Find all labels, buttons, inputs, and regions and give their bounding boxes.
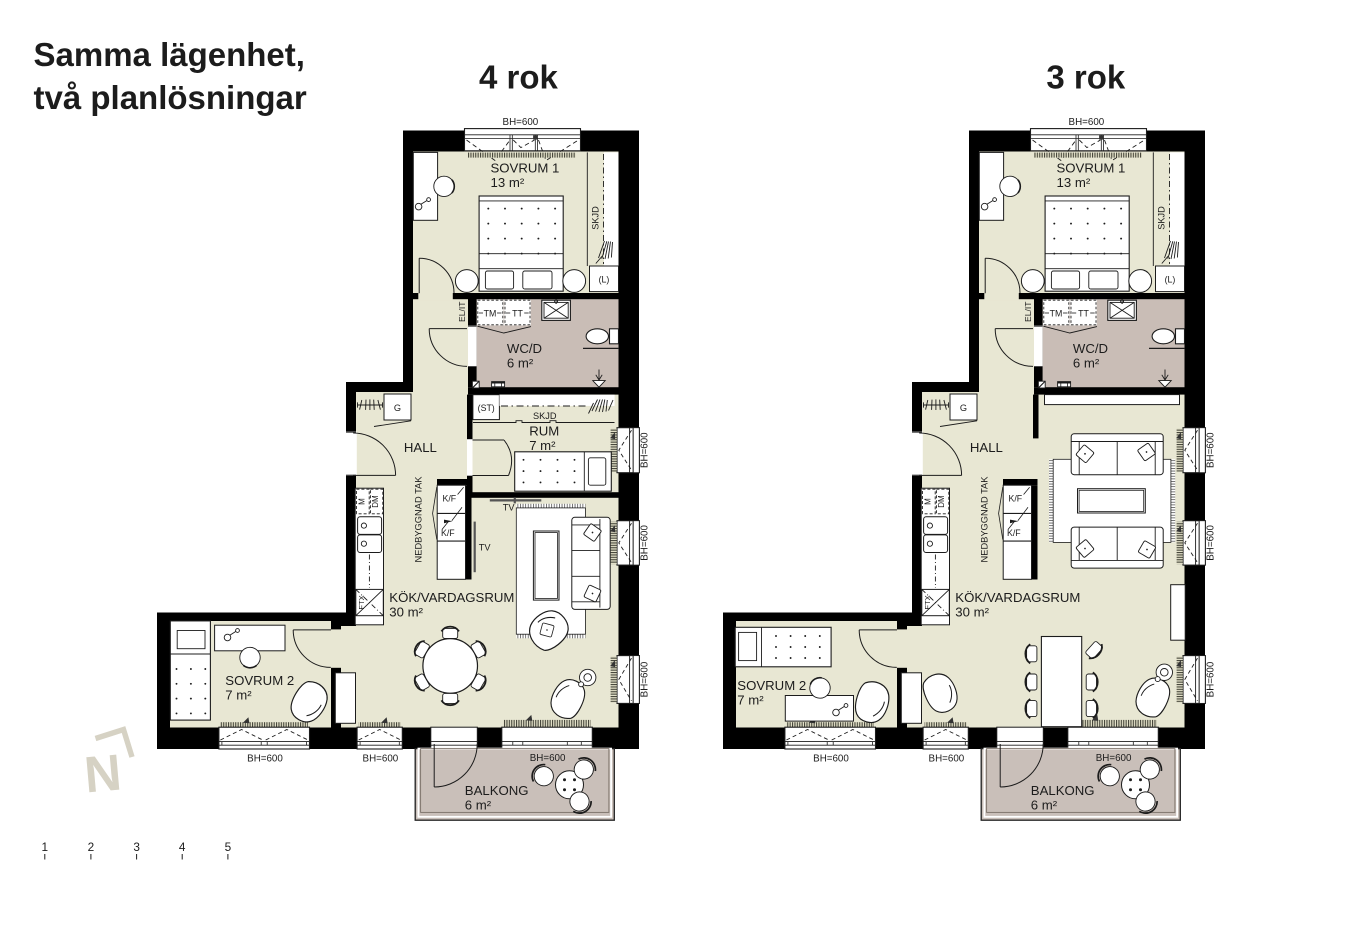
svg-text:två planlösningar: två planlösningar (34, 79, 307, 116)
svg-text:6 m²: 6 m² (465, 798, 492, 813)
svg-text:4: 4 (179, 840, 186, 854)
svg-text:M: M (924, 498, 933, 505)
svg-text:TT: TT (1078, 309, 1089, 319)
svg-text:BH=600: BH=600 (813, 754, 849, 765)
svg-text:BH=600: BH=600 (640, 432, 651, 468)
svg-text:30 m²: 30 m² (389, 604, 423, 619)
svg-text:5: 5 (225, 840, 232, 854)
svg-text:DM: DM (937, 495, 946, 508)
svg-text:BH=600: BH=600 (640, 661, 651, 697)
svg-text:7 m²: 7 m² (529, 438, 556, 453)
svg-text:3: 3 (133, 840, 140, 854)
svg-text:BH=600: BH=600 (503, 117, 539, 128)
svg-text:BALKONG: BALKONG (1031, 783, 1095, 798)
svg-text:EL/IT: EL/IT (1023, 301, 1033, 322)
svg-text:BH=600: BH=600 (1206, 432, 1217, 468)
svg-text:BH=600: BH=600 (530, 753, 566, 764)
svg-text:4 rok: 4 rok (479, 59, 559, 96)
svg-text:M: M (358, 498, 367, 505)
svg-text:WC/D: WC/D (507, 341, 542, 356)
svg-text:13 m²: 13 m² (491, 175, 525, 190)
svg-text:7 m²: 7 m² (225, 687, 252, 702)
svg-text:FTX: FTX (357, 595, 366, 609)
svg-text:6 m²: 6 m² (507, 355, 534, 370)
svg-text:BH=600: BH=600 (247, 754, 283, 765)
svg-text:7 m²: 7 m² (737, 693, 764, 708)
svg-text:NEDBYGGNAD TAK: NEDBYGGNAD TAK (980, 476, 990, 563)
svg-text:HALL: HALL (970, 440, 1003, 455)
svg-text:TV: TV (479, 543, 492, 553)
svg-text:SOVRUM 2: SOVRUM 2 (737, 678, 806, 693)
svg-text:SKJD: SKJD (1157, 206, 1167, 230)
svg-text:SKJD: SKJD (591, 206, 601, 230)
svg-text:NEDBYGGNAD TAK: NEDBYGGNAD TAK (414, 476, 424, 563)
svg-text:WC/D: WC/D (1073, 341, 1108, 356)
svg-text:TV: TV (503, 503, 516, 513)
svg-text:SOVRUM 1: SOVRUM 1 (491, 161, 560, 176)
svg-text:K/F: K/F (441, 528, 455, 538)
svg-text:30 m²: 30 m² (955, 604, 989, 619)
svg-text:K/F: K/F (1009, 494, 1023, 504)
svg-text:BH=600: BH=600 (1096, 753, 1132, 764)
svg-text:FTX: FTX (923, 595, 932, 609)
svg-text:SOVRUM 1: SOVRUM 1 (1057, 161, 1126, 176)
svg-text:BH=600: BH=600 (1206, 661, 1217, 697)
svg-text:SKJD: SKJD (533, 411, 557, 421)
svg-text:HALL: HALL (404, 440, 437, 455)
svg-text:SOVRUM 2: SOVRUM 2 (225, 673, 294, 688)
svg-text:G: G (960, 403, 967, 413)
svg-text:13 m²: 13 m² (1057, 175, 1091, 190)
svg-text:KÖK/VARDAGSRUM: KÖK/VARDAGSRUM (389, 590, 514, 605)
svg-text:TM: TM (1050, 309, 1063, 319)
svg-text:(L): (L) (1165, 274, 1176, 284)
svg-text:DM: DM (371, 495, 380, 508)
svg-text:RUM: RUM (529, 424, 559, 439)
svg-text:BH=600: BH=600 (929, 754, 965, 765)
svg-text:6 m²: 6 m² (1031, 798, 1058, 813)
svg-text:TM: TM (484, 309, 497, 319)
svg-text:3 rok: 3 rok (1046, 59, 1126, 96)
svg-text:KÖK/VARDAGSRUM: KÖK/VARDAGSRUM (955, 590, 1080, 605)
svg-text:BH=600: BH=600 (640, 525, 651, 561)
svg-text:BH=600: BH=600 (1069, 117, 1105, 128)
svg-text:(L): (L) (599, 274, 610, 284)
svg-text:BH=600: BH=600 (1206, 525, 1217, 561)
svg-text:6 m²: 6 m² (1073, 355, 1100, 370)
svg-text:TT: TT (512, 309, 523, 319)
svg-text:G: G (394, 403, 401, 413)
svg-text:Samma lägenhet,: Samma lägenhet, (34, 36, 305, 73)
svg-text:BH=600: BH=600 (363, 754, 399, 765)
svg-text:N: N (82, 744, 124, 804)
svg-text:K/F: K/F (443, 494, 457, 504)
svg-text:2: 2 (88, 840, 95, 854)
svg-text:K/F: K/F (1007, 528, 1021, 538)
svg-text:BALKONG: BALKONG (465, 783, 529, 798)
svg-text:(ST): (ST) (478, 403, 495, 413)
svg-text:EL/IT: EL/IT (457, 301, 467, 322)
svg-text:1: 1 (42, 840, 49, 854)
